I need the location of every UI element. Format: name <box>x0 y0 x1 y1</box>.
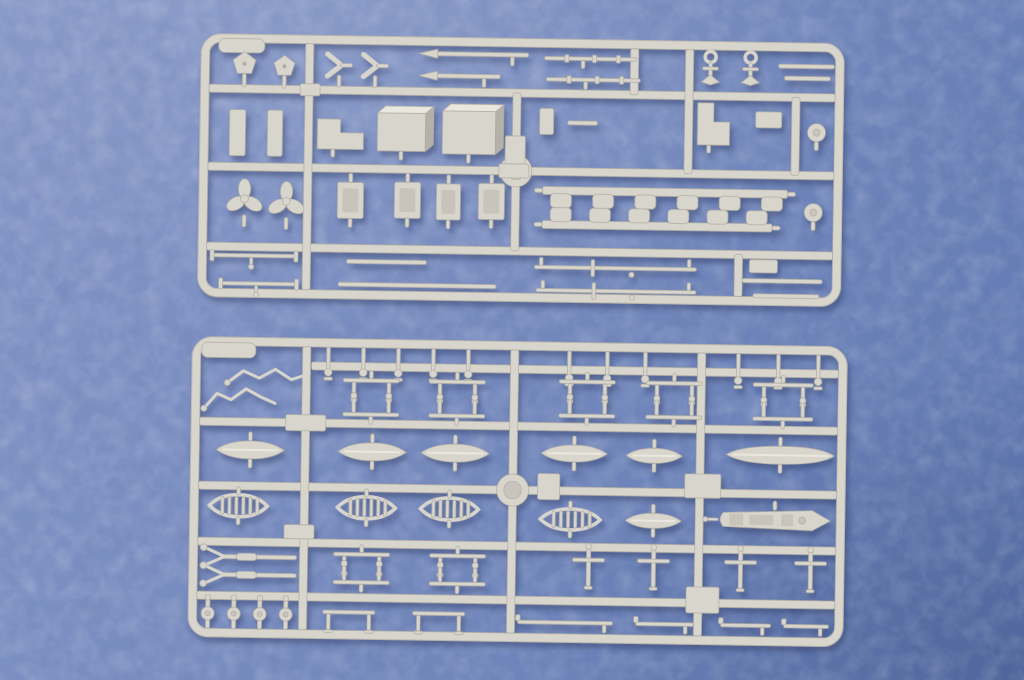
photo-canvas <box>0 0 1024 680</box>
rod-part <box>568 121 598 125</box>
moulding-block-part <box>267 110 283 156</box>
sprue-runner-v <box>734 254 743 296</box>
rod-part <box>779 64 835 69</box>
label-tab <box>219 38 265 53</box>
moulding-block-part <box>505 136 525 164</box>
gate-hub <box>496 474 528 506</box>
moulding-block-part <box>229 109 246 155</box>
moulding-block-part <box>756 112 782 128</box>
label-tab <box>202 342 256 358</box>
moulding-block-part <box>537 473 559 499</box>
sprue-runner-v <box>630 49 639 95</box>
sprue-runner-v <box>684 50 694 174</box>
rod-part <box>753 294 819 299</box>
moulding-block-part <box>685 474 721 499</box>
rod-part <box>742 279 822 284</box>
moulding-block-part <box>499 164 529 178</box>
moulding-block-part <box>749 260 777 273</box>
moulding-block-part <box>686 587 719 614</box>
moulding-block-part <box>300 84 320 96</box>
moulding-block-part <box>284 524 314 538</box>
moulding-block-part <box>286 414 326 431</box>
rod-part <box>784 76 830 81</box>
rod-part <box>346 259 426 264</box>
sprue-runner-v <box>791 97 800 175</box>
photo <box>0 0 1024 680</box>
moulding-block-part <box>539 108 553 134</box>
